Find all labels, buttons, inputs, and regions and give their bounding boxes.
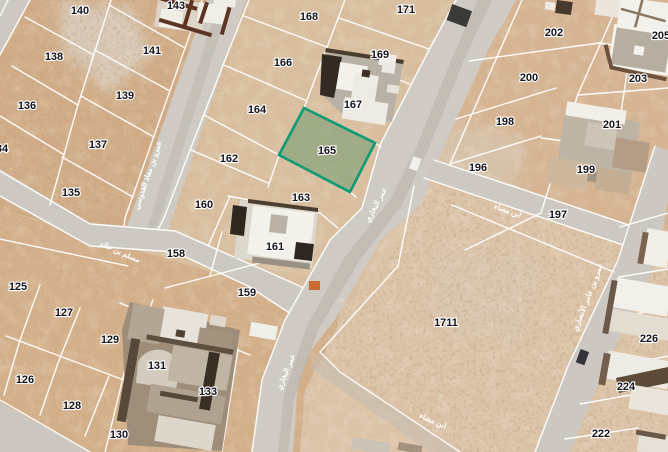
svg-text:202: 202 (545, 27, 563, 39)
svg-text:127: 127 (55, 307, 73, 319)
svg-text:131: 131 (148, 360, 166, 372)
svg-text:171: 171 (397, 4, 415, 16)
svg-text:199: 199 (577, 164, 595, 176)
svg-text:1711: 1711 (434, 317, 458, 329)
svg-text:136: 136 (18, 100, 36, 112)
svg-text:197: 197 (549, 209, 567, 221)
svg-text:138: 138 (45, 51, 63, 63)
svg-text:167: 167 (344, 99, 362, 111)
svg-text:224: 224 (617, 381, 636, 393)
svg-text:200: 200 (520, 72, 538, 84)
svg-text:141: 141 (143, 45, 161, 57)
svg-text:126: 126 (16, 374, 34, 386)
svg-text:140: 140 (71, 5, 89, 17)
svg-text:165: 165 (318, 145, 336, 157)
svg-text:161: 161 (266, 241, 284, 253)
svg-text:143: 143 (167, 0, 185, 12)
svg-text:137: 137 (89, 139, 107, 151)
svg-text:130: 130 (110, 429, 128, 441)
svg-text:203: 203 (629, 73, 647, 85)
svg-text:198: 198 (496, 116, 514, 128)
svg-text:129: 129 (101, 334, 119, 346)
svg-text:168: 168 (300, 11, 318, 23)
svg-text:125: 125 (9, 281, 27, 293)
svg-text:133: 133 (199, 386, 217, 398)
svg-text:169: 169 (371, 49, 389, 61)
svg-text:139: 139 (116, 90, 134, 102)
svg-text:135: 135 (62, 187, 80, 199)
svg-text:201: 201 (603, 119, 621, 131)
svg-text:128: 128 (63, 400, 81, 412)
svg-text:166: 166 (274, 57, 292, 69)
svg-text:158: 158 (167, 248, 185, 260)
svg-text:222: 222 (592, 428, 610, 440)
svg-text:164: 164 (248, 104, 267, 116)
svg-text:159: 159 (238, 287, 256, 299)
svg-text:34: 34 (0, 143, 9, 155)
svg-text:196: 196 (469, 162, 487, 174)
svg-text:163: 163 (292, 192, 310, 204)
svg-text:162: 162 (220, 153, 238, 165)
svg-text:160: 160 (195, 199, 213, 211)
svg-text:205: 205 (652, 30, 668, 42)
svg-text:226: 226 (640, 333, 658, 345)
